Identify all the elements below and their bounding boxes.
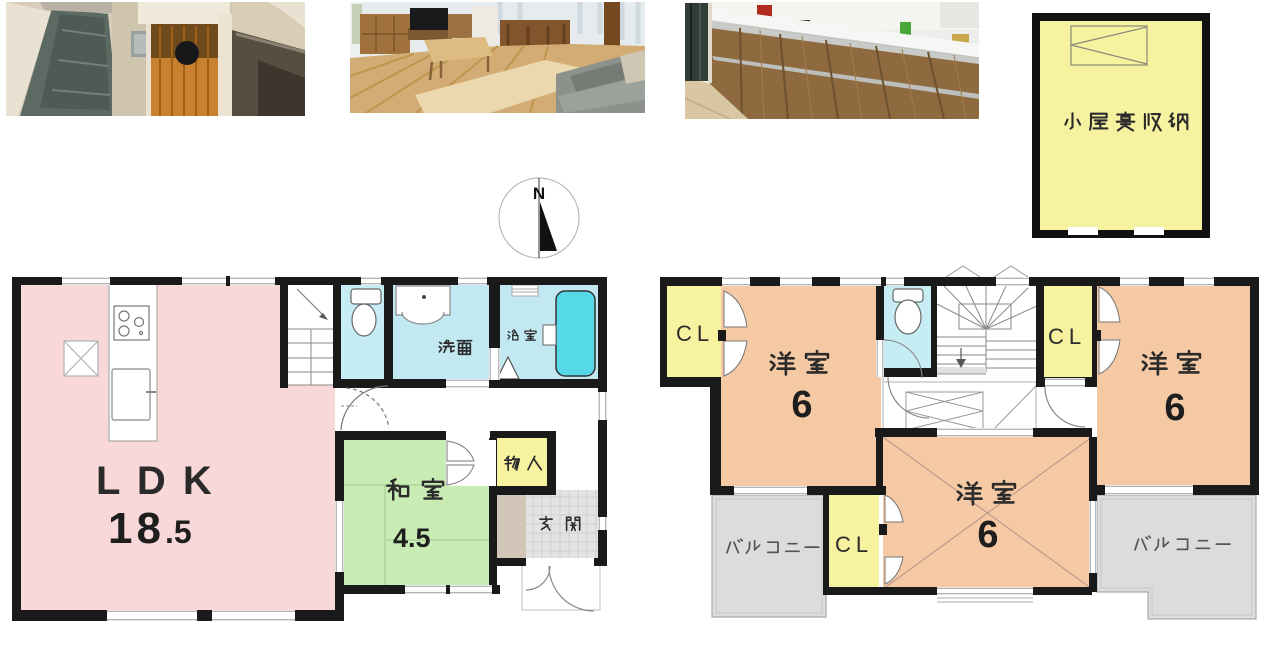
svg-text:L D K: L D K <box>96 459 215 503</box>
svg-text:4.5: 4.5 <box>393 523 431 553</box>
svg-text:6: 6 <box>791 384 812 426</box>
svg-text:CL: CL <box>1048 324 1086 349</box>
svg-text:CL: CL <box>676 321 714 346</box>
svg-text:6: 6 <box>977 514 998 556</box>
svg-text:N: N <box>533 184 545 203</box>
svg-text:6: 6 <box>1164 387 1185 429</box>
svg-text:CL: CL <box>835 532 873 557</box>
